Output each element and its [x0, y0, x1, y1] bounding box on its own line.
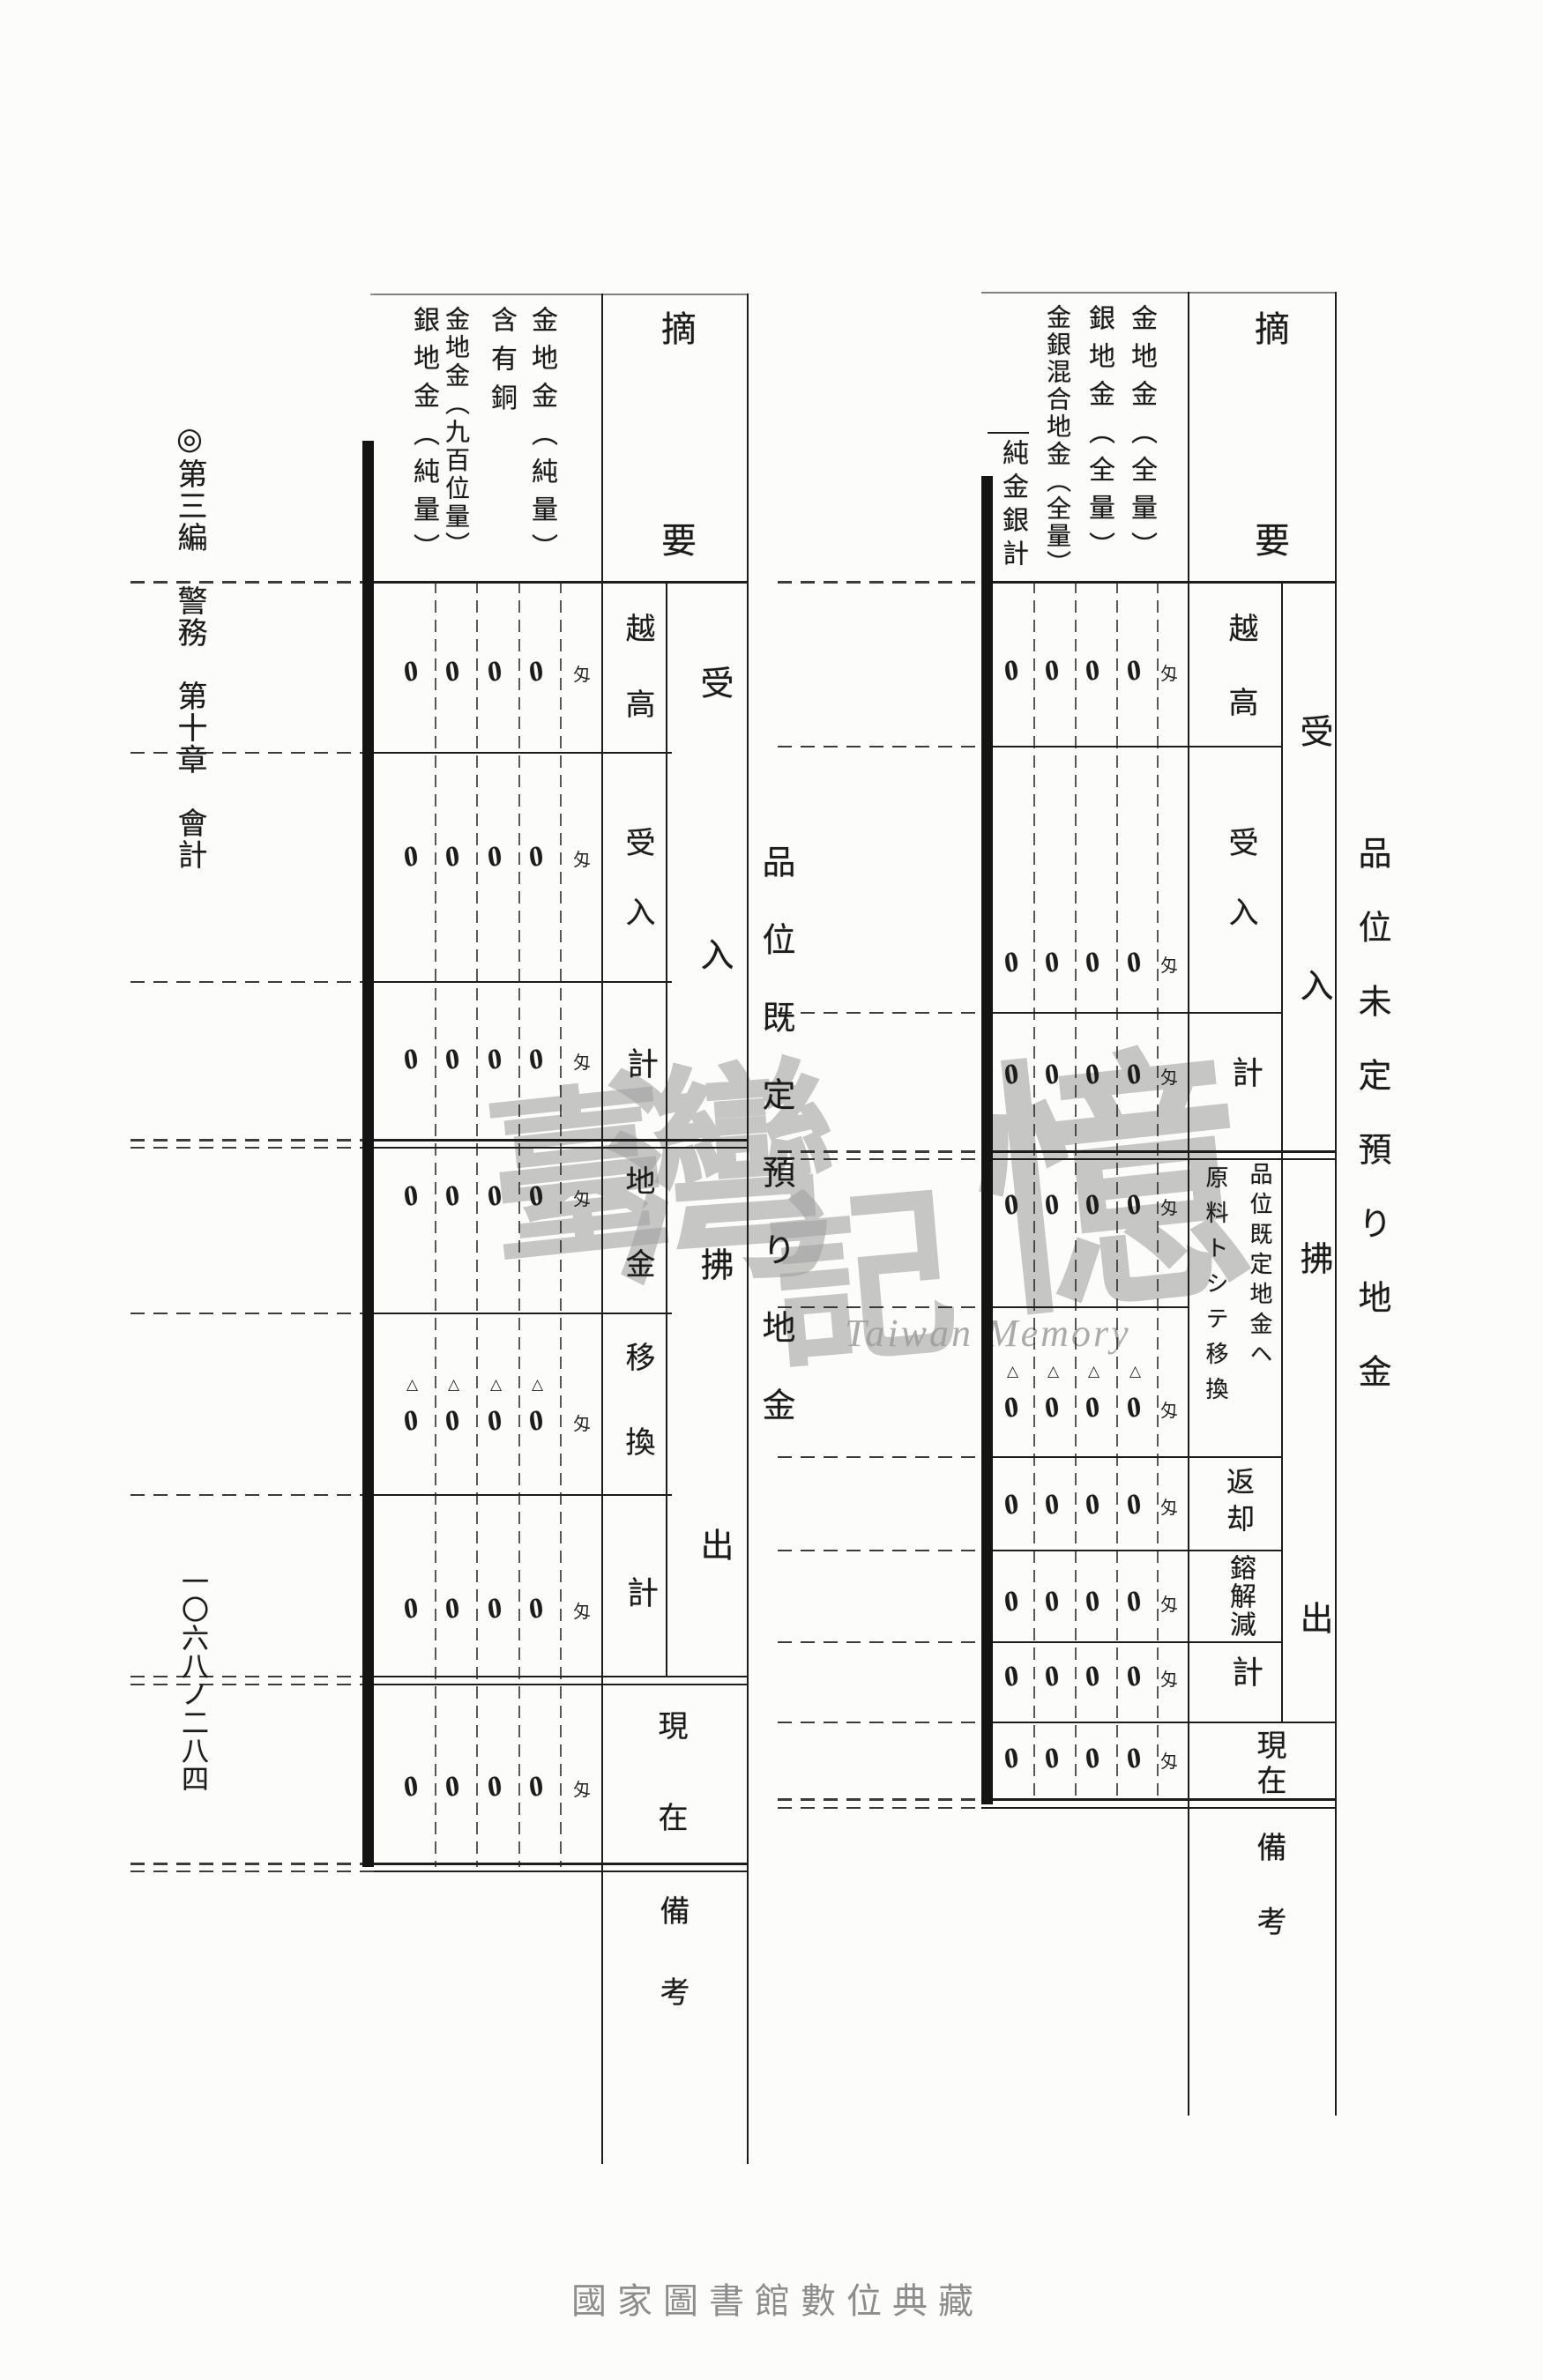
right-row-subtotal-out: 計 [1222, 1655, 1268, 1687]
left-col-gold-900: 金地金︵九百位量︶ [437, 306, 473, 560]
right-col-gold-gross: 金地金︵全量︶ [1122, 304, 1160, 569]
grid-line [518, 581, 520, 1867]
cell-value: 0 [444, 838, 462, 874]
cell-value: 0 [1043, 1740, 1062, 1776]
left-row-subtotal-in: 計 [617, 1047, 663, 1079]
cell-value: 0 [1084, 1658, 1102, 1694]
unit-label: 匁 [573, 1409, 591, 1435]
unit-label: 匁 [1160, 1493, 1178, 1519]
unit-label: 匁 [573, 1597, 591, 1623]
cell-value: 0 [402, 1178, 421, 1214]
grid-line [130, 1313, 374, 1314]
negative-mark: △ [490, 1376, 502, 1394]
negative-mark: △ [406, 1376, 418, 1394]
left-row-bullion: 地金 [615, 1165, 659, 1331]
cell-value: 0 [486, 1590, 504, 1626]
cell-value: 0 [527, 838, 546, 874]
cell-value: 0 [1125, 1486, 1144, 1522]
grid-line [1075, 581, 1077, 1803]
right-row-returned: 返却 [1219, 1467, 1259, 1541]
cell-value: 0 [1003, 1658, 1021, 1694]
grid-line [778, 1012, 981, 1014]
grid-line [981, 1550, 1281, 1551]
cell-value: 0 [1084, 1740, 1102, 1776]
cell-value: 0 [1003, 1389, 1021, 1425]
left-col-copper-content: 含有銅 [481, 306, 520, 422]
cell-value: 0 [1043, 652, 1062, 688]
left-row-received: 受入 [615, 827, 659, 966]
negative-mark: △ [1047, 1363, 1059, 1380]
cell-value: 0 [444, 1178, 462, 1214]
grid-line [981, 292, 1336, 294]
cell-value: 0 [444, 1768, 462, 1804]
cell-value: 0 [1125, 1740, 1144, 1776]
cell-value: 0 [1043, 1389, 1062, 1425]
unit-label: 匁 [573, 660, 591, 686]
negative-mark: △ [1129, 1363, 1141, 1380]
grid-line [988, 432, 1029, 434]
cell-value: 0 [1084, 1486, 1102, 1522]
cell-value: 0 [402, 838, 421, 874]
left-col-silver-pure: 銀地金︵純量︶ [404, 306, 443, 571]
grid-line [778, 1550, 981, 1551]
cell-value: 0 [1003, 652, 1021, 688]
grid-line [130, 1676, 374, 1677]
cell-value: 0 [402, 1768, 421, 1804]
negative-mark: △ [448, 1376, 459, 1394]
cell-value: 0 [444, 1590, 462, 1626]
cell-value: 0 [1125, 1389, 1144, 1425]
unit-label: 匁 [573, 1775, 591, 1801]
grid-line [778, 1456, 981, 1458]
cell-value: 0 [486, 653, 504, 689]
left-group-in: 受入 [690, 666, 738, 1209]
grid-line [981, 1012, 1281, 1014]
grid-line [981, 1807, 1336, 1809]
left-col-gold-pure: 金地金︵純量︶ [522, 306, 561, 571]
grid-line [778, 1641, 981, 1643]
cell-value: 0 [402, 1590, 421, 1626]
cell-value: 0 [444, 1402, 462, 1439]
unit-label: 匁 [1160, 659, 1178, 685]
cell-value: 0 [1003, 1583, 1021, 1619]
right-row-carryover: 越高 [1219, 613, 1262, 761]
grid-line [362, 441, 374, 1867]
unit-label: 匁 [1160, 1194, 1178, 1219]
library-footer: 國家圖書館數位典藏 [571, 2272, 984, 2324]
grid-line [1157, 581, 1159, 1803]
unit-label: 匁 [1160, 951, 1178, 977]
grid-line [981, 1456, 1281, 1458]
unit-label: 匁 [1160, 1665, 1178, 1691]
grid-line [981, 1641, 1281, 1643]
grid-line [1281, 581, 1283, 1722]
cell-value: 0 [486, 838, 504, 874]
left-table-title: 品位既定預り地金 [751, 844, 800, 1465]
cell-value: 0 [486, 1402, 504, 1439]
grid-line [476, 581, 478, 1867]
unit-label: 匁 [573, 845, 591, 871]
grid-line [130, 1494, 374, 1496]
grid-line [981, 476, 993, 1804]
grid-line [1033, 581, 1035, 1803]
grid-line [778, 581, 981, 584]
unit-label: 匁 [573, 1185, 591, 1210]
cell-value: 0 [527, 1768, 546, 1804]
grid-line [374, 294, 748, 295]
page-number: 一〇六八ノ二八四 [173, 1567, 212, 1793]
grid-line [130, 1684, 374, 1685]
unit-label: 匁 [1160, 1747, 1178, 1773]
grid-line [130, 981, 374, 983]
negative-mark: △ [532, 1376, 543, 1394]
left-row-on-hand: 現在 [648, 1710, 691, 1893]
right-row-on-hand: 現在 [1247, 1729, 1290, 1800]
right-row-transfer-line1: 品位既定地金ヘ [1243, 1162, 1276, 1372]
grid-line [778, 1158, 981, 1160]
cell-value: 0 [402, 1041, 421, 1077]
grid-line [1116, 581, 1118, 1803]
right-group-out: 拂出 [1289, 1241, 1338, 1960]
cell-value: 0 [402, 653, 421, 689]
left-row-transfer: 移換 [615, 1342, 659, 1511]
grid-line [666, 581, 667, 1676]
left-group-out: 拂出 [690, 1247, 738, 1808]
cell-value: 0 [486, 1768, 504, 1804]
cell-value: 0 [527, 653, 546, 689]
grid-line [1188, 292, 1189, 2116]
cell-value: 0 [1084, 1389, 1102, 1425]
unit-label: 匁 [573, 1048, 591, 1074]
right-row-received: 受入 [1219, 827, 1262, 966]
grid-line [778, 1798, 981, 1801]
cell-value: 0 [1003, 1486, 1021, 1522]
grid-line [130, 1863, 374, 1865]
cell-value: 0 [527, 1402, 546, 1439]
cell-value: 0 [1043, 1486, 1062, 1522]
right-col-pure-total: 純金銀計 [993, 439, 1032, 573]
cell-value: 0 [1125, 1658, 1144, 1694]
scanned-document-page: 臺 灣 記 憶 Taiwan Memory ◎第三編 警務 第十章 會計 一〇六… [0, 0, 1543, 2380]
negative-mark: △ [1007, 1363, 1018, 1380]
right-group-in: 受入 [1289, 714, 1338, 1222]
cell-value: 0 [444, 653, 462, 689]
grid-line [778, 1306, 981, 1308]
right-row-transfer-line2: 原料トシテ移換 [1199, 1165, 1232, 1412]
unit-label: 匁 [1160, 1396, 1178, 1422]
left-row-subtotal-out: 計 [617, 1576, 663, 1608]
grid-line [778, 1150, 981, 1153]
grid-line [601, 294, 603, 2164]
cell-value: 0 [1084, 652, 1102, 688]
right-col-silver-gross: 銀地金︵全量︶ [1079, 304, 1118, 569]
grid-line [374, 981, 672, 983]
cell-value: 0 [1125, 1583, 1144, 1619]
unit-label: 匁 [1160, 1590, 1178, 1616]
right-col-mixed-gross: 金銀混合地金︵全量︶ [1039, 304, 1074, 577]
cell-value: 0 [444, 1041, 462, 1077]
grid-line [374, 1871, 748, 1872]
grid-line [560, 581, 562, 1867]
grid-line [130, 1147, 374, 1149]
left-row-remarks: 備考 [650, 1895, 693, 2057]
cell-value: 0 [1043, 1583, 1062, 1619]
grid-line [130, 1139, 374, 1142]
left-row-carryover: 越高 [615, 613, 659, 764]
cell-value: 0 [527, 1590, 546, 1626]
cell-value: 0 [1084, 1583, 1102, 1619]
right-table-title: 品位未定預り地金 [1347, 836, 1396, 1428]
cell-value: 0 [1003, 944, 1021, 980]
grid-line [778, 1807, 981, 1809]
grid-line [435, 581, 436, 1867]
cell-value: 0 [1043, 1658, 1062, 1694]
right-row-subtotal-in: 計 [1222, 1056, 1268, 1088]
right-row-melting-loss: 鎔解減 [1220, 1554, 1259, 1639]
grid-line [778, 746, 981, 747]
grid-line [778, 1722, 981, 1723]
edition-header: ◎第三編 警務 第十章 會計 [168, 421, 211, 871]
grid-line [747, 294, 749, 2164]
cell-value: 0 [1003, 1740, 1021, 1776]
unit-label: 匁 [1160, 1063, 1178, 1089]
right-row-remarks: 備考 [1247, 1832, 1290, 1980]
cell-value: 0 [402, 1402, 421, 1439]
cell-value: 0 [1125, 652, 1144, 688]
negative-mark: △ [1088, 1363, 1099, 1380]
grid-line [130, 1871, 374, 1872]
